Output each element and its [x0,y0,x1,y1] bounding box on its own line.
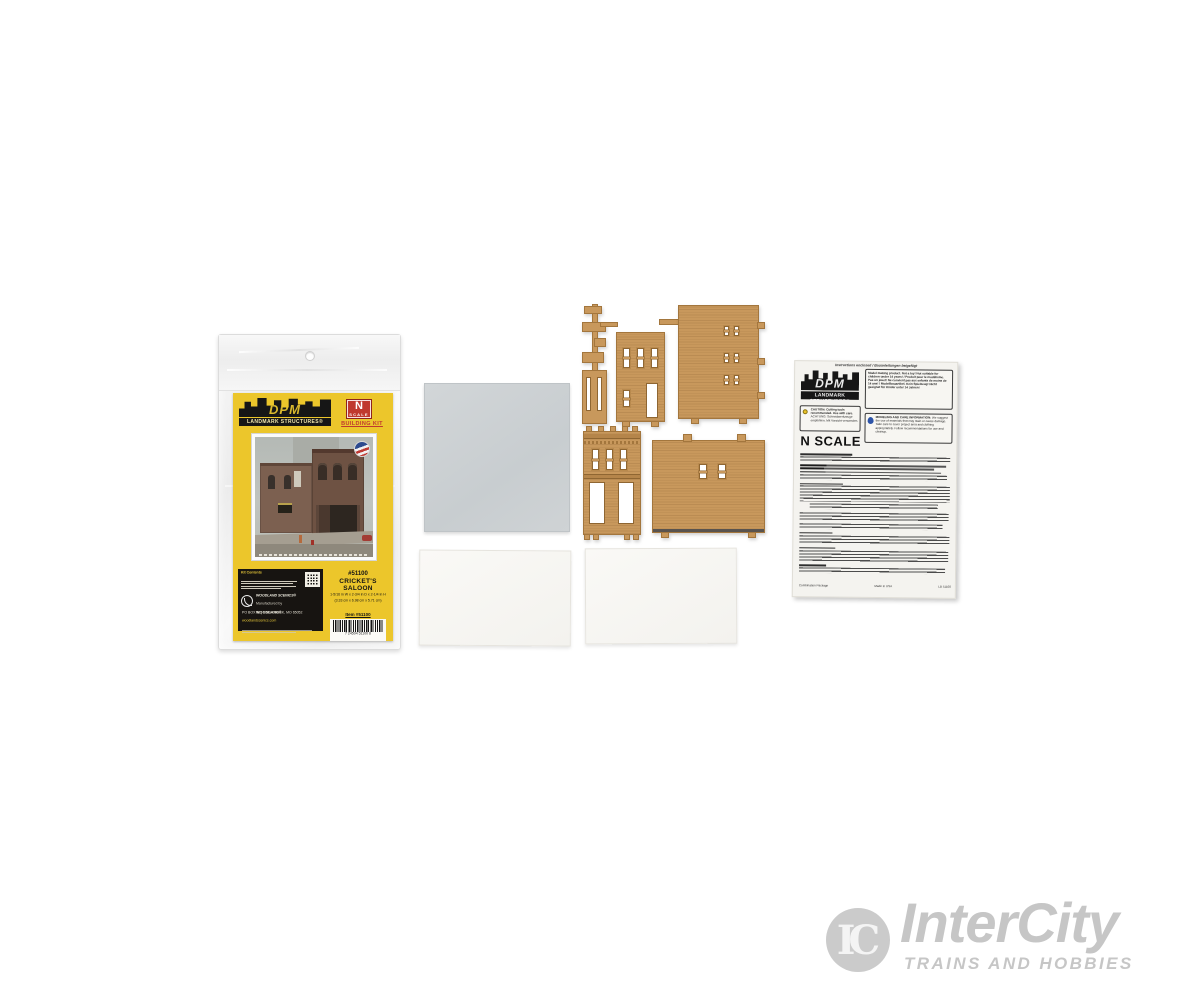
scale-word: SCALE [347,412,371,417]
parked-car [362,535,372,541]
door-opening [646,383,658,418]
sprue-arm [600,322,618,327]
casting-piece [582,352,604,363]
bag-wrinkle [239,347,359,353]
kit-contents-box: Kit Contents WOODLAND SCENICS® Manufactu… [238,569,323,631]
fire-hydrant [311,540,314,545]
window-opening [636,347,645,369]
retailer-name: InterCity [900,890,1118,955]
alignment-tab [748,532,756,538]
window-opening [717,463,727,480]
alignment-tab [593,534,599,540]
dpm-logo-text: DPM [239,402,331,417]
arched-window [268,475,275,489]
retailer-watermark: IC InterCity TRAINS AND HOBBIES [826,898,1198,994]
saloon-front-facade [312,449,364,535]
pedestrian-figure [299,535,302,543]
care-body: We suggest the use of materials that may… [875,417,947,434]
intercity-monogram-icon: IC [826,908,890,972]
safety-warning-box: Model making product. Not a toy! Not sui… [865,369,953,410]
scale-letter: N [347,401,371,412]
dpm-skyline-icon: DPM [239,398,331,417]
kit-number: #51100 [325,571,391,578]
distributor-line [242,630,312,631]
window-opening [591,448,600,471]
wall-sign [278,503,292,513]
barcode-digits: 7 24504 51100 8 [333,632,383,636]
front-wall-part [616,332,665,422]
window-opening [723,352,730,364]
cornice-band [584,434,640,439]
side-wall-part-upper [678,305,759,419]
side-wall-part-lower [652,440,765,533]
dpm-tagline-bar: LANDMARK STRUCTURES® [239,418,331,426]
dpm-logo: DPM LANDMARK STRUCTURES® [239,398,331,426]
cornice-post [610,426,616,432]
bag-hanger-flap [219,335,400,391]
window-opening [733,325,740,337]
cornice-post [598,426,604,432]
sheet-footer: Combination Package Made in USA LB 51100 [799,584,951,593]
dpm-tagline: LANDMARK STRUCTURES® [239,419,331,425]
alignment-tab [624,534,630,540]
retailer-tagline: TRAINS AND HOBBIES [904,954,1134,974]
barcode: 7 24504 51100 8 [330,619,386,641]
arched-window [348,463,357,480]
dpm-tagline: LANDMARK STRUCTURES® [801,392,859,405]
product-photo-canvas: DPM LANDMARK STRUCTURES® N SCALE BUILDIN… [0,0,1200,1000]
casting-piece [584,306,602,314]
kit-name-line2: SALOON [325,585,391,592]
qr-code-icon [305,572,320,587]
cornice-post [622,426,628,432]
window-opening [650,347,659,369]
manufacturer-website: woodlandscenics.com [242,619,320,623]
arched-window [284,475,291,489]
window-opening [733,352,740,364]
kit-name-line1: CRICKET'S [325,578,391,585]
dpm-skyline-icon: DPM [801,370,859,391]
kit-dimensions-inches: 1-5/16 in W x 2-3/4 in D x 2-1/4 in H [325,593,391,597]
caution-text-en: CAUTION: Cutting tools recommended. Use … [811,408,853,415]
storefront-wall-part [583,431,641,535]
instruction-sheet: Instructions enclosed / Bauanleitungen b… [792,360,958,599]
alignment-tab [757,322,765,329]
kit-type-label: BUILDING KIT [333,421,391,427]
alignment-tab [757,392,765,399]
door-frame-casting [582,370,607,424]
dpm-logo: DPM LANDMARK STRUCTURES® [801,370,859,400]
window-opening [733,374,740,386]
manufacturer-name: WOODLAND SCENICS® [256,594,320,598]
manufacturer-address: PO BOX 98 | LINN CREEK, MO 65052 [242,611,320,615]
white-glazing-sheet-right [585,548,738,645]
barcode-bars [333,620,383,632]
caution-box: CAUTION: Cutting tools recommended. Use … [800,405,861,432]
scale-heading: N SCALE [800,433,861,449]
dpm-tagline-bar: LANDMARK STRUCTURES® [801,391,859,400]
storefront-bay-opening [589,482,605,524]
window-opening [723,325,730,337]
arched-window [318,463,327,480]
alignment-tab [737,434,746,442]
caution-dot-icon [803,409,808,414]
kit-header-card: DPM LANDMARK STRUCTURES® N SCALE BUILDIN… [233,393,393,641]
storefront-lintel [584,474,640,479]
care-information-box: MODELING AND CARE INFORMATION: We sugges… [864,413,952,444]
alignment-tab [633,534,639,540]
photo-caption-line [259,554,369,556]
manufactured-by-label: Manufactured by [256,602,320,606]
flag-roundel-icon [354,441,370,457]
window-opening [605,448,614,471]
door-frame-opening [586,377,591,411]
window-opening [698,463,708,480]
safety-warning-text: Model making product. Not a toy! Not sui… [868,372,950,390]
cornice-post [632,426,638,432]
distributor-line [242,632,296,633]
bag-wrinkle [227,369,387,371]
alignment-tab [757,358,765,365]
alignment-tab [584,534,590,540]
footer-left: Combination Package [799,584,828,588]
woodland-scenics-roundel-icon [241,595,253,607]
door-frame-opening [597,377,602,411]
cornice-post [586,426,592,432]
kit-contents-lines [241,581,299,590]
window-opening [622,389,631,408]
footer-right: LB 51100 [938,585,951,589]
scale-badge: N SCALE [346,399,372,419]
window-opening [622,347,631,369]
window-opening [619,448,628,471]
kit-packaging-bag: DPM LANDMARK STRUCTURES® N SCALE BUILDIN… [218,334,401,650]
instruction-body-text [799,453,952,577]
white-glazing-sheet-left [419,549,572,646]
alignment-tab [739,418,747,424]
footer-center: Made in USA [874,585,892,589]
caution-text-de: ACHTUNG: Schneidwerkzeuge empfohlen. Mit… [811,416,859,423]
item-number-label: Item #51100 [325,612,391,617]
storefront-bay-opening [618,482,634,524]
gray-roof-sheet [424,383,570,532]
wall-poster [294,471,301,487]
alignment-tab [661,532,669,538]
alignment-tab [683,434,692,442]
saloon-side-wall [260,463,312,533]
box-art-photo [255,437,373,557]
monogram-text: IC [837,917,874,964]
storefront-opening [316,505,360,535]
box-art-photo-frame [251,433,377,561]
arched-window [333,463,342,480]
alignment-tab [651,421,659,427]
dpm-logo-text: DPM [801,376,859,391]
dentil-trim [584,441,640,444]
window-opening [723,374,730,386]
casting-piece [594,338,606,347]
alignment-tab [691,418,699,424]
bag-hang-hole [305,351,315,361]
water-drop-icon [868,417,874,424]
kit-dimensions-metric: (3.33 cm x 6.98 cm x 5.71 cm) [325,599,391,603]
kit-info-panel: #51100 CRICKET'S SALOON 1-5/16 in W x 2-… [325,569,391,641]
